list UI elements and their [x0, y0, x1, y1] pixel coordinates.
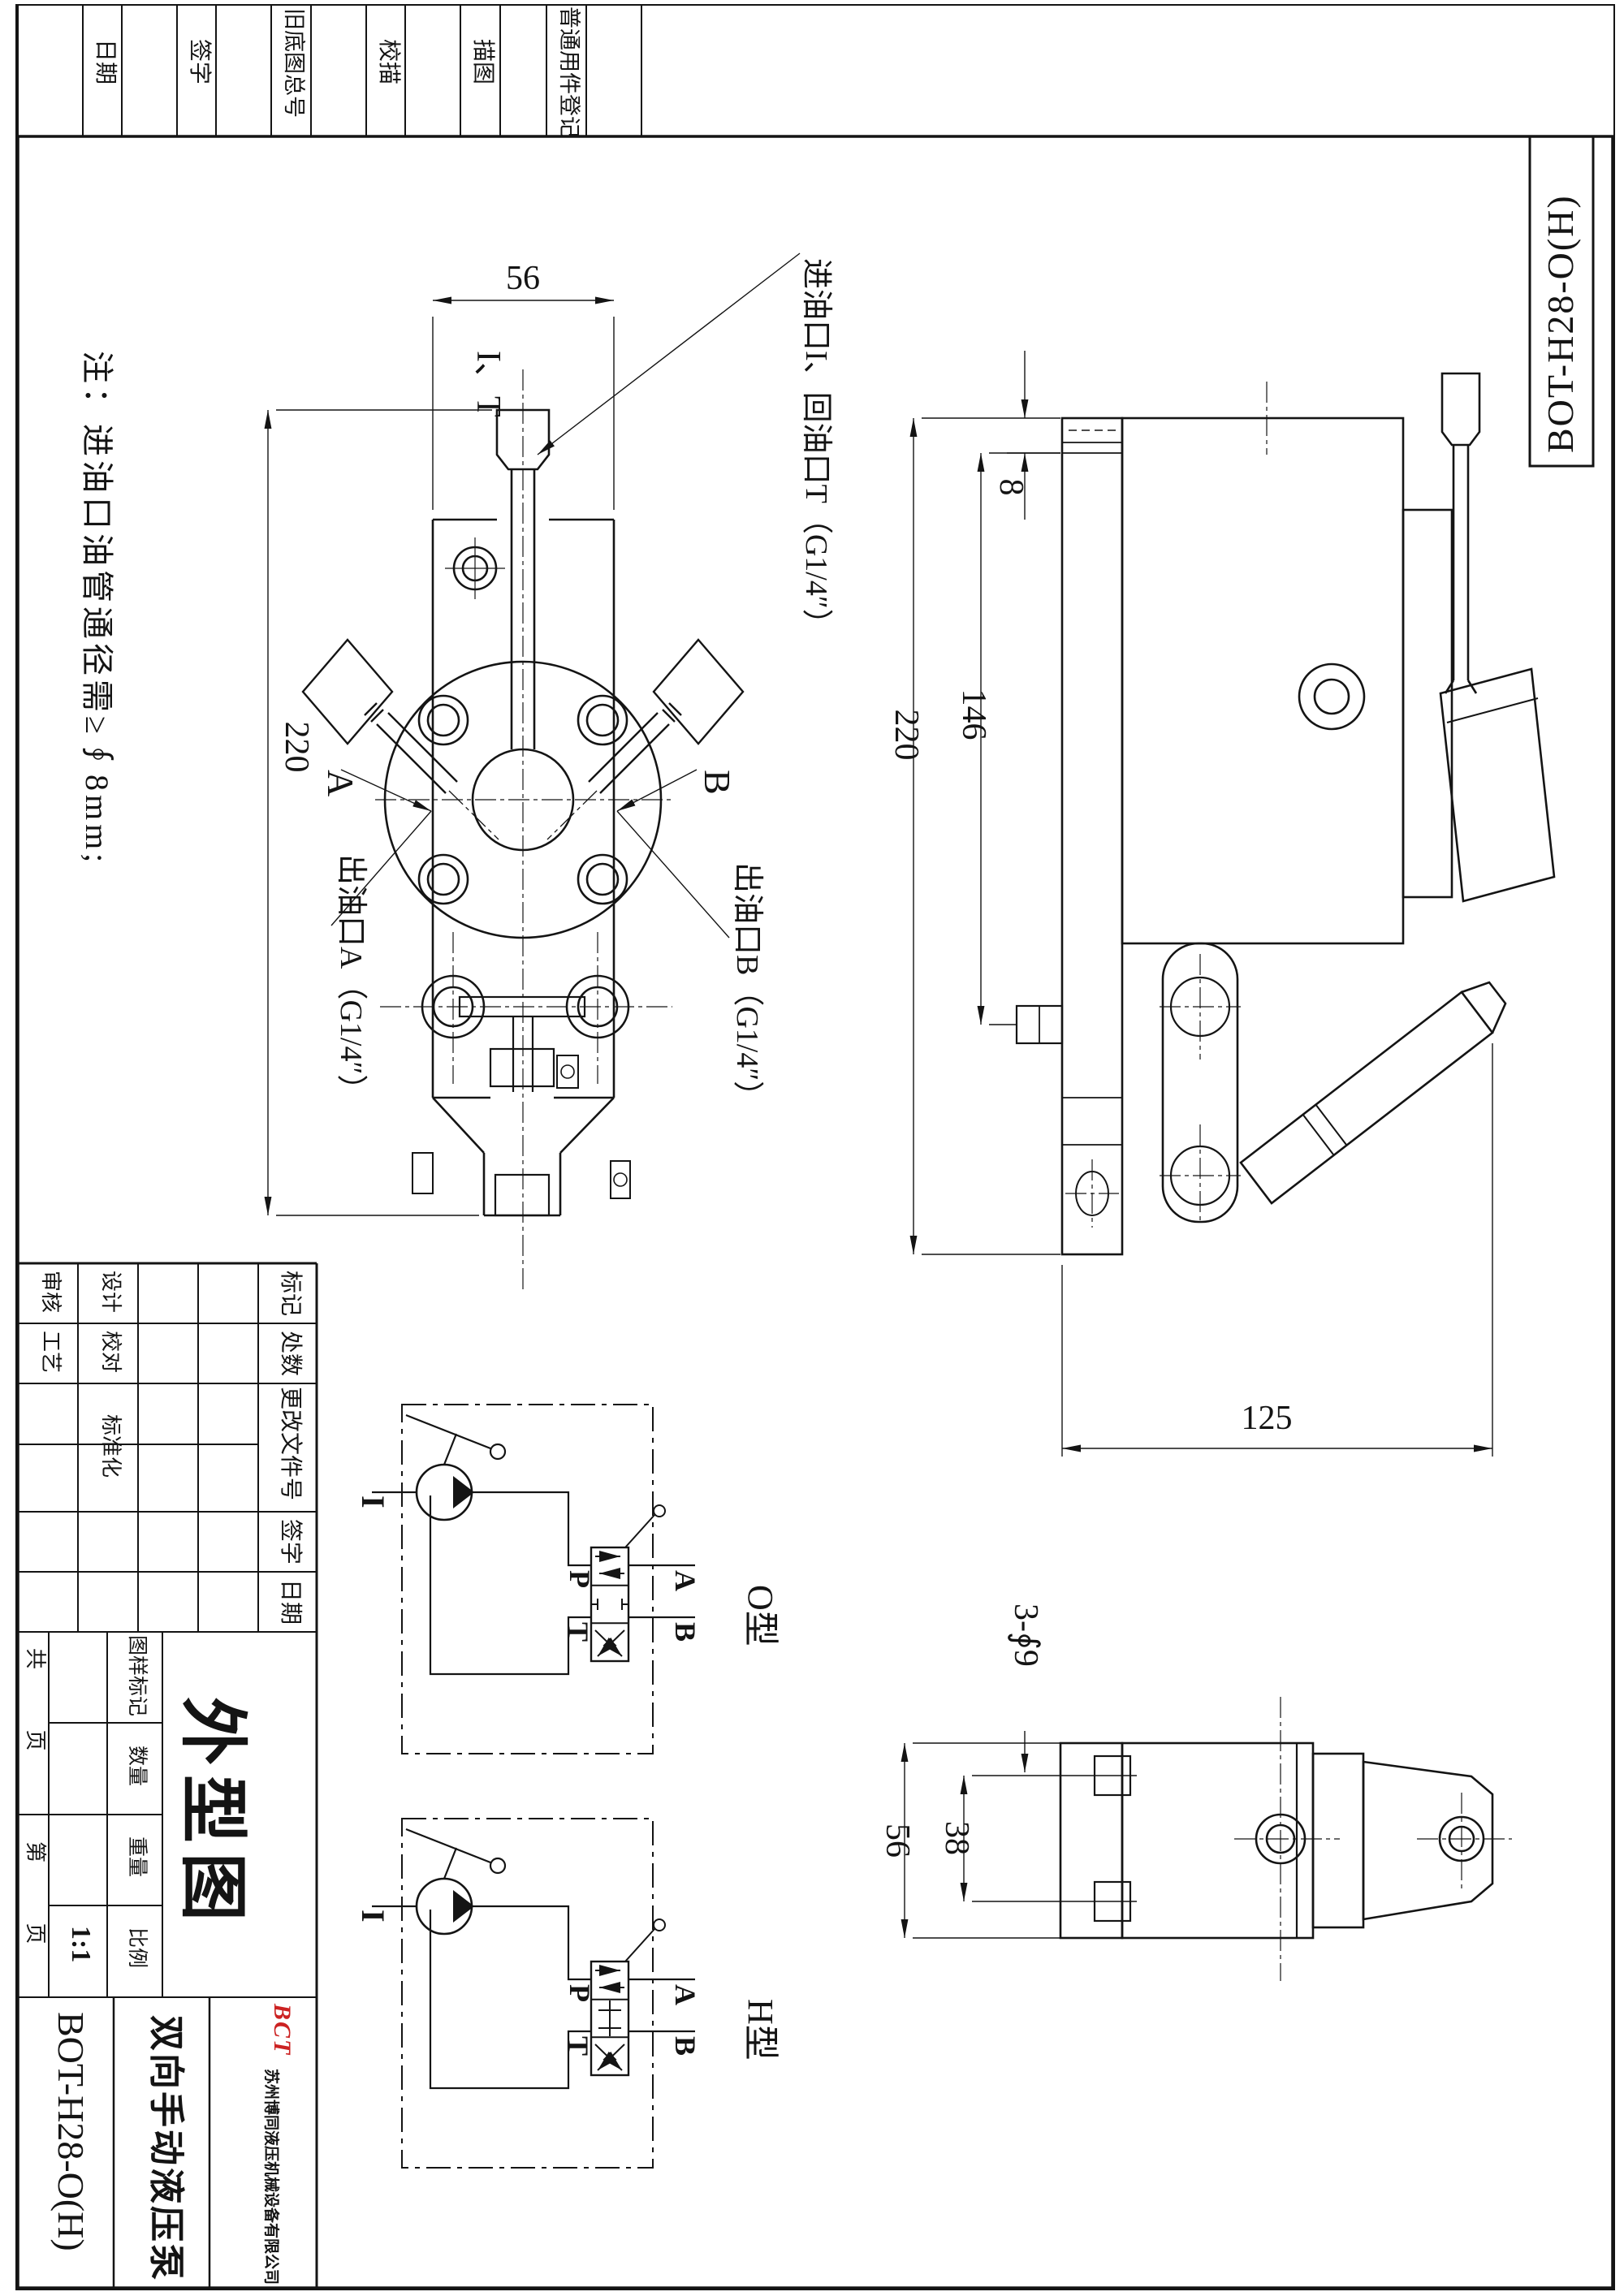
hydraulic-schematics: I P T A B O型: [349, 1380, 853, 2249]
tb-scale: 比例: [127, 1927, 147, 1968]
dim-125-text: 125: [1242, 1400, 1293, 1437]
h-label-i: I: [355, 1910, 391, 1923]
tb-change-doc: 更改文件号: [279, 1387, 301, 1500]
dim-220-text: 220: [278, 722, 315, 773]
mounting-plate: [1062, 418, 1122, 1254]
dim-56-bottom-text: 56: [879, 1823, 916, 1858]
handle-lower: [1241, 992, 1492, 1203]
tb-standard: 标准化: [100, 1414, 121, 1478]
tb-count: 处数: [279, 1331, 301, 1376]
dim-holes-text: 3-∮9: [1007, 1603, 1044, 1667]
schematic-o: [372, 1405, 695, 1754]
strip-label-trace-check: 校描: [377, 39, 400, 84]
o-label-a: A: [669, 1570, 702, 1591]
strip-label-date: 日期: [93, 39, 116, 84]
tb-weight: 重量: [127, 1836, 147, 1877]
dim-220-side-text: 220: [888, 710, 925, 761]
company-logo: BCT: [270, 2004, 294, 2056]
o-label-b: B: [669, 1622, 702, 1642]
tb-review: 审核: [40, 1271, 61, 1313]
tb-company: 苏州博同液压机械设备有限公司: [263, 2069, 279, 2285]
tb-total-pages: 共 页: [24, 1648, 45, 1779]
tb-drawing-title: 外型图: [177, 1697, 245, 1931]
callout-inlet-text: 进油口I、回油口T（G1/4″）: [799, 258, 833, 640]
tb-stamp: 图样标记: [127, 1635, 147, 1716]
dim-56-bottom: [905, 1743, 1060, 1938]
handle-left-front: [303, 640, 499, 839]
tb-drawing-no: BOT-H28-O(H): [52, 2012, 89, 2251]
front-view: 56 220 I、T 进油口I、回油口T（G1/4″） A 出油口A（G1/4″…: [203, 179, 861, 1331]
valve-o: [591, 1505, 665, 1661]
callout-outlet-b: 出油口B（G1/4″）: [730, 862, 764, 1111]
handle-socket: [1440, 669, 1554, 901]
dim-56-text: 56: [506, 260, 540, 297]
h-label-t: T: [562, 2036, 594, 2056]
drawing-sheet: 日期 签字 旧底图总号 校描 描图 普通用件登记 BOT-H28-O(H) 注：…: [0, 0, 1624, 2296]
strip-label-common-reg: 普通用件登记: [558, 6, 580, 138]
link-arm: [1163, 943, 1237, 1222]
tb-check: 校对: [100, 1331, 121, 1373]
tb-sign: 签字: [279, 1519, 301, 1564]
tb-page-no: 第 页: [24, 1841, 45, 1972]
handle-grip-side: [1442, 373, 1479, 445]
tb-quantity: 数量: [127, 1746, 147, 1786]
strip-label-sign: 签字: [188, 39, 210, 84]
dim-8-text: 8: [992, 479, 1030, 496]
strip-label-old-no: 旧底图总号: [283, 8, 304, 118]
o-label-i: I: [355, 1495, 391, 1508]
dim-146-text: 146: [955, 689, 992, 740]
pump-body-bottom: [1060, 1743, 1492, 1938]
h-label-a: A: [669, 1984, 702, 2005]
side-port-circle: [1299, 664, 1364, 729]
tb-date: 日期: [279, 1579, 301, 1625]
o-label-t: T: [562, 1622, 594, 1642]
tb-process: 工艺: [40, 1331, 61, 1373]
tb-scale-value: 1:1: [67, 1926, 94, 1962]
dim-220-side: [914, 418, 1060, 1254]
tb-product-name: 双向手动液压泵: [148, 2015, 184, 2282]
callout-outlet-a: 出油口A（G1/4″）: [334, 854, 368, 1105]
schematic-h: [372, 1819, 695, 2168]
h-type-label: H型: [741, 1999, 780, 2061]
tb-design: 设计: [100, 1271, 121, 1313]
o-type-label: O型: [741, 1585, 780, 1646]
label-it: I、T: [469, 351, 507, 417]
label-a: A: [320, 770, 361, 796]
side-view: 220 146 8 125: [877, 260, 1608, 1494]
dim-125: [1062, 1043, 1492, 1457]
o-label-p: P: [564, 1570, 596, 1588]
valve-h: [591, 1919, 665, 2075]
pump-body-side: [1017, 373, 1554, 1254]
flange-bottom: [1060, 1743, 1122, 1938]
tb-mark: 标记: [279, 1271, 301, 1316]
dim-220: [268, 410, 492, 1215]
dim-38: [964, 1776, 1080, 1901]
bottom-view: 56 38 3-∮9: [877, 1567, 1592, 2038]
h-label-p: P: [564, 1984, 596, 2002]
strip-label-trace: 描图: [471, 39, 494, 84]
label-b: B: [697, 770, 738, 795]
dim-38-text: 38: [938, 1821, 975, 1855]
note-text: 注：进油口油管通径需≥∮8mm;: [80, 351, 113, 866]
h-label-b: B: [669, 2036, 702, 2056]
handle-right-front: [547, 640, 743, 839]
